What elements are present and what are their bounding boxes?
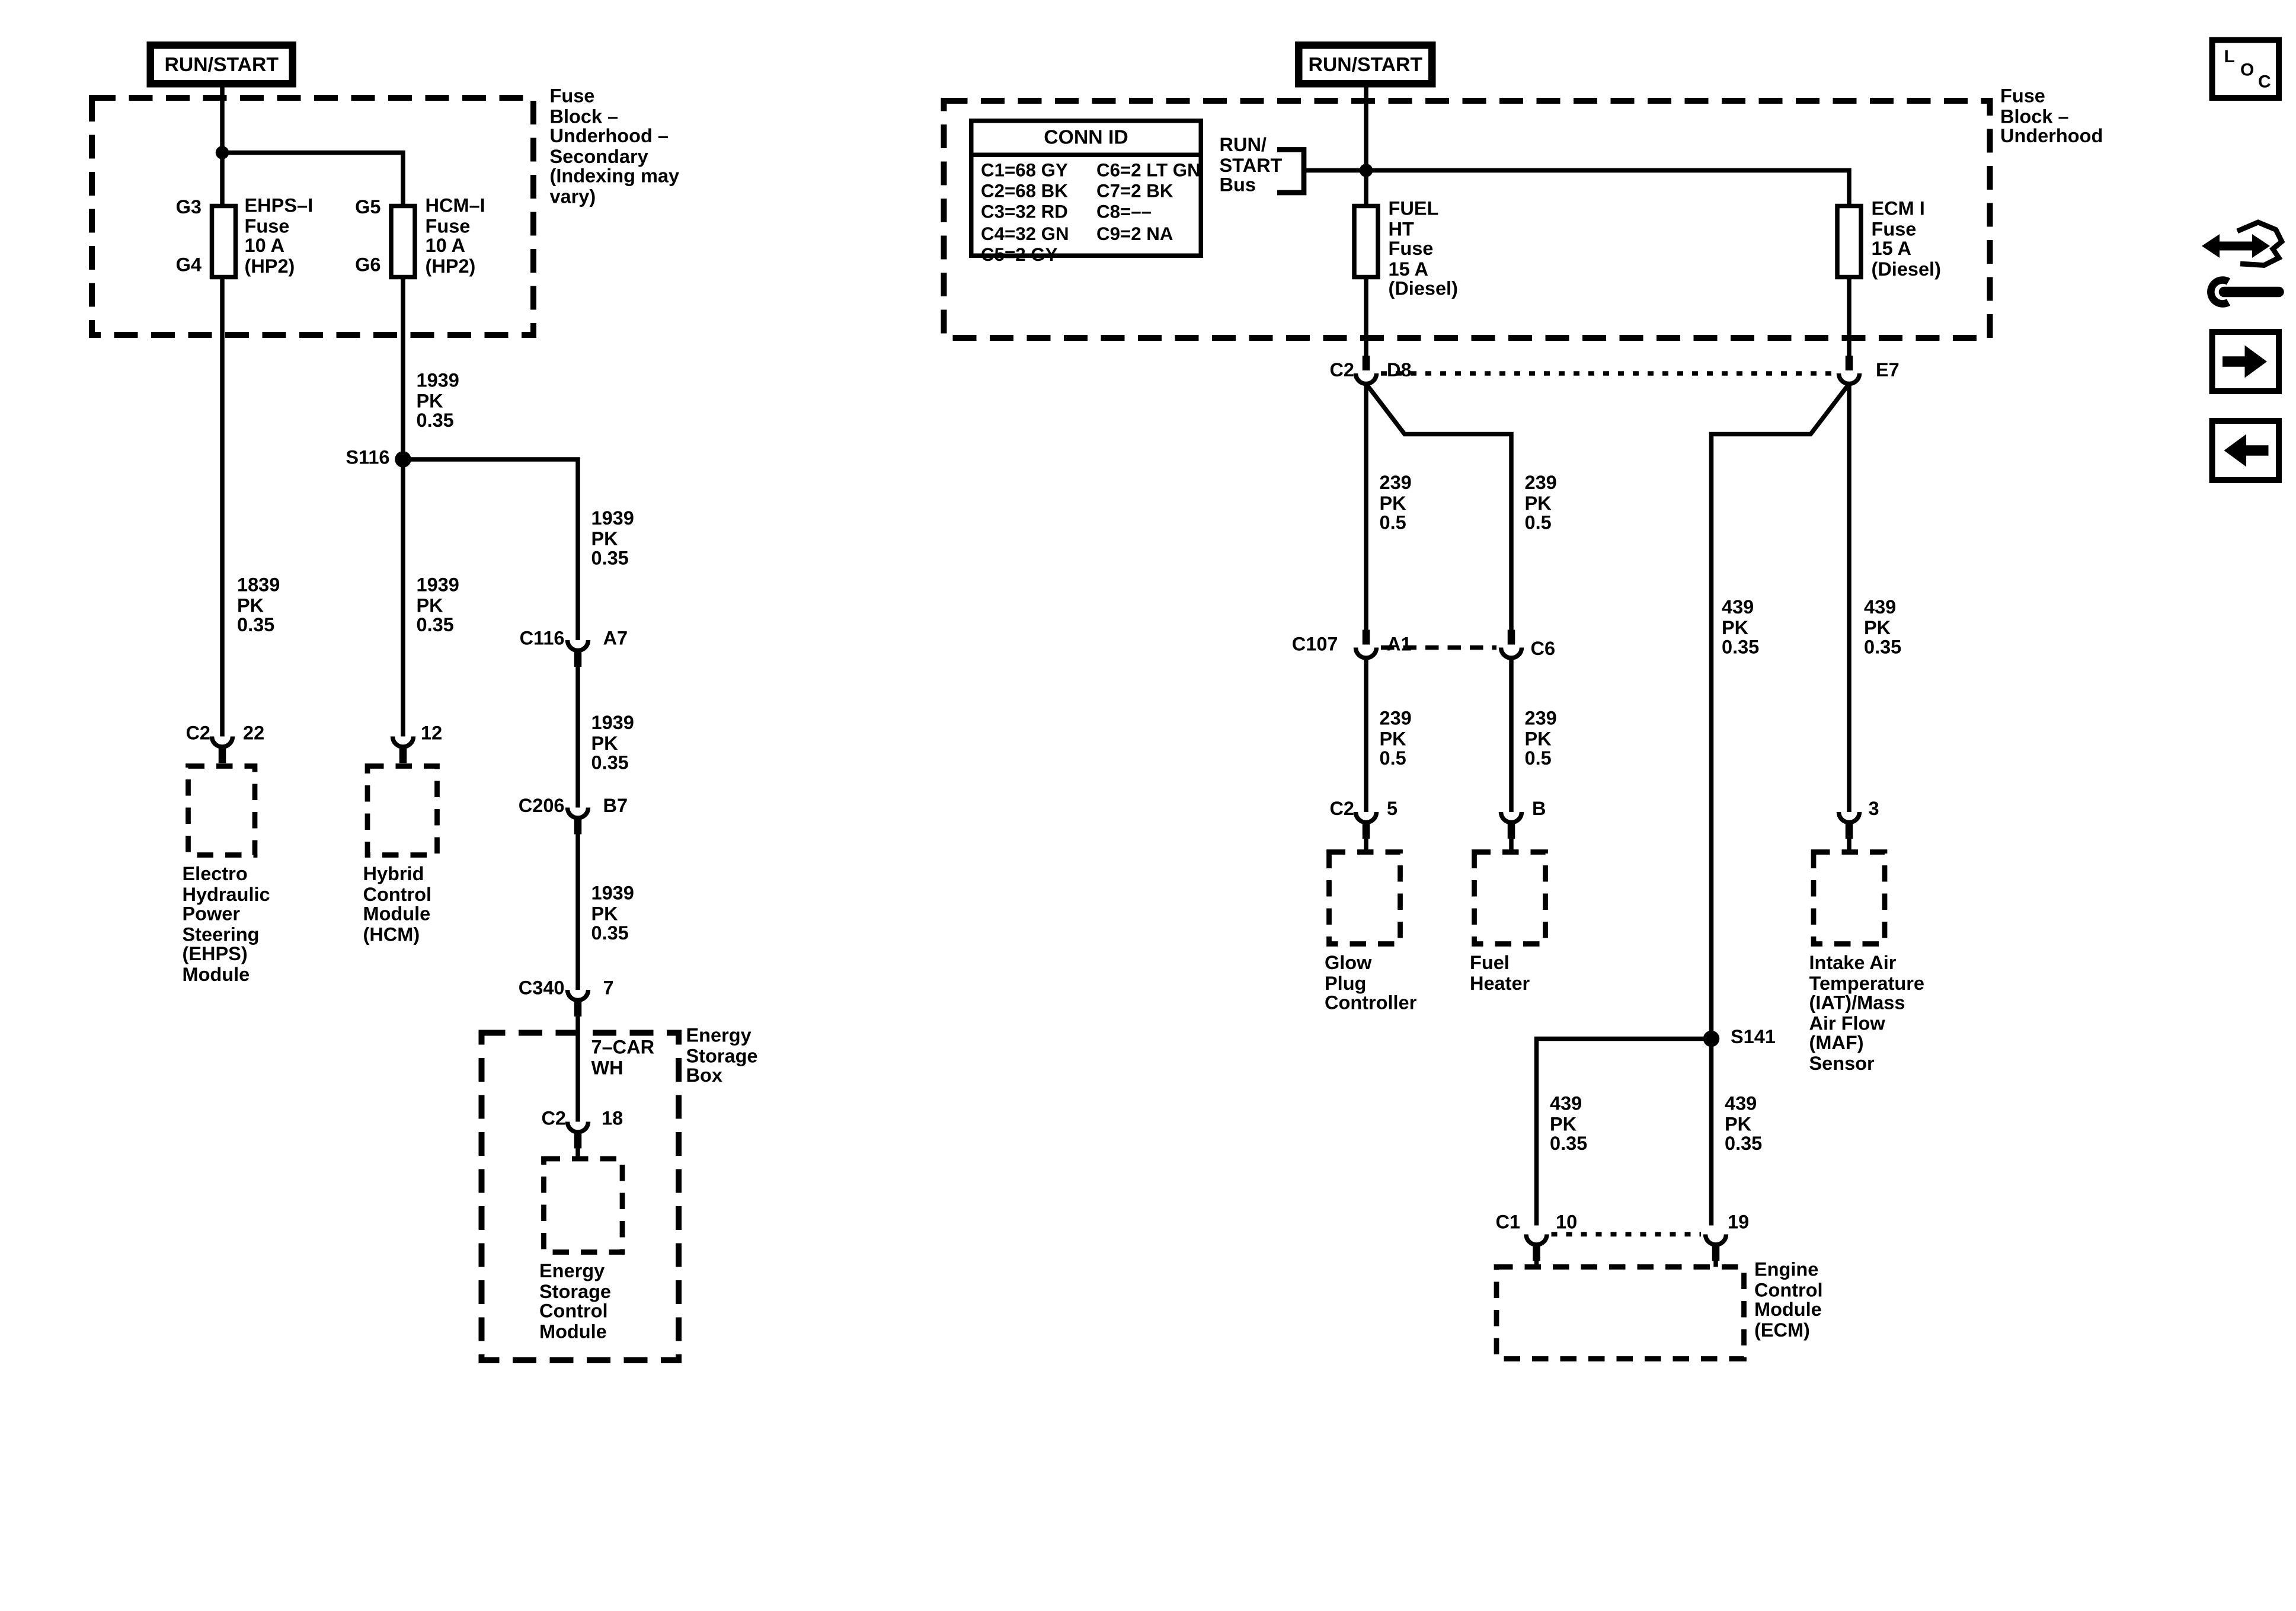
junction-dot: [216, 146, 229, 159]
conn-id-cell: C8=––: [1096, 202, 1201, 223]
connector-ticks: [219, 356, 1853, 1261]
connector-pin: 3: [1869, 799, 1879, 819]
fuse-fuel-ht: [1354, 206, 1378, 277]
fuse-pin-label: G5: [334, 197, 381, 218]
iat-maf-sensor-box: [1814, 852, 1885, 944]
connector-19: [1706, 1235, 1726, 1245]
wire-label: 239 PK 0.5: [1380, 708, 1412, 768]
glow-plug-controller-box: [1329, 852, 1400, 944]
splice-s141-label: S141: [1731, 1027, 1776, 1047]
wire-label: 439 PK 0.35: [1864, 597, 1901, 657]
escm-module-box: [544, 1159, 623, 1252]
connector-e7: [1839, 373, 1860, 384]
ecm-module-box: [1496, 1267, 1744, 1359]
wire-label: 439 PK 0.35: [1722, 597, 1759, 657]
loc-letter-c: C: [2258, 73, 2271, 91]
run-start-box-right: RUN/START: [1295, 41, 1436, 88]
connector-name: C2: [519, 1108, 566, 1129]
connector-pin: B7: [603, 796, 628, 816]
loc-letter-l: L: [2224, 47, 2235, 65]
hcm-module-label: Hybrid Control Module (HCM): [363, 864, 432, 944]
fuse-hcm-i: [391, 206, 415, 277]
fuse-ehps-i: [212, 206, 236, 277]
fuel-heater-box: [1475, 852, 1546, 944]
wire-run-start-bus: [1304, 171, 1849, 206]
ehps-module-label: Electro Hydraulic Power Steering (EHPS) …: [183, 864, 270, 984]
wire-label: 239 PK 0.5: [1525, 473, 1557, 533]
connector-pin: 19: [1728, 1212, 1749, 1232]
forward-button[interactable]: [2209, 329, 2282, 394]
ehps-module-box: [188, 766, 255, 855]
connector-pin: 7: [603, 978, 614, 998]
wire-label: 1939 PK 0.35: [591, 509, 634, 568]
connector-c206-b7: [568, 808, 589, 819]
connector-pin: 5: [1387, 799, 1398, 819]
connector-pin: 22: [243, 723, 264, 743]
wire-label: 1939 PK 0.35: [417, 370, 459, 430]
wire-label: 239 PK 0.5: [1380, 473, 1412, 533]
run-start-label: RUN/START: [1309, 55, 1423, 75]
connector-c116-a7: [568, 640, 589, 651]
wrench-double-arrow-icon: [2202, 216, 2294, 311]
conn-id-cell: C5=2 GY: [981, 244, 1096, 266]
connector-b: [1501, 812, 1522, 823]
connector-name: C2: [1298, 360, 1354, 381]
connector-c107-a1: [1356, 648, 1377, 659]
fuse-label: EHPS–I Fuse 10 A (HP2): [245, 196, 314, 276]
connector-12: [393, 737, 414, 747]
fuse-label: ECM I Fuse 15 A (Diesel): [1872, 199, 1941, 279]
loc-button[interactable]: L O C: [2209, 37, 2282, 101]
connector-name: C340: [500, 978, 565, 998]
connector-pin: 12: [421, 723, 442, 743]
fuse-label: FUEL HT Fuse 15 A (Diesel): [1389, 199, 1458, 299]
energy-storage-box-label: Energy Storage Box: [686, 1025, 758, 1085]
ecm-module-label: Engine Control Module (ECM): [1754, 1260, 1823, 1340]
glow-plug-controller-label: Glow Plug Controller: [1325, 953, 1416, 1013]
connector-c2-22: [212, 737, 233, 747]
fuse-ecm-i: [1837, 206, 1861, 277]
back-button[interactable]: [2209, 418, 2282, 483]
wire-label: 1939 PK 0.35: [591, 713, 634, 773]
conn-id-cell: C1=68 GY: [981, 160, 1096, 181]
escm-module-label: Energy Storage Control Module: [539, 1261, 611, 1341]
wire-label: 1839 PK 0.35: [237, 575, 280, 635]
splice-s116-dot: [395, 451, 411, 468]
fuse-pin-label: G3: [154, 197, 202, 218]
conn-id-table: CONN ID C1=68 GY C6=2 LT GN C2=68 BK C7=…: [969, 119, 1203, 258]
fuse-block-underhood-label: Fuse Block – Underhood: [2000, 86, 2103, 146]
conn-id-cell: [1096, 244, 1201, 266]
connector-pin: 18: [602, 1108, 623, 1129]
connector-pin: C6: [1531, 639, 1556, 659]
hcm-module-box: [367, 766, 437, 855]
junction-dot: [1360, 164, 1373, 177]
connector-3: [1839, 812, 1860, 823]
conn-id-cell: C4=32 GN: [981, 223, 1096, 245]
connector-pin: 10: [1556, 1212, 1577, 1232]
connector-name: C107: [1273, 634, 1338, 654]
conn-id-cell: C6=2 LT GN: [1096, 160, 1201, 181]
connector-name: C2: [154, 723, 210, 743]
connector-name: C1: [1476, 1212, 1520, 1232]
nav-tool-button[interactable]: [2202, 216, 2294, 311]
wire: [1712, 384, 1850, 1039]
left-arrow-icon: [2215, 424, 2276, 477]
connector-c340-7: [568, 990, 589, 1001]
connector-pin: E7: [1876, 360, 1900, 381]
connector-name: C206: [500, 796, 565, 816]
conn-id-cell: C2=68 BK: [981, 181, 1096, 203]
run-start-label: RUN/START: [165, 55, 279, 75]
wire-label: 439 PK 0.35: [1550, 1094, 1587, 1153]
splice-s141-dot: [1703, 1031, 1720, 1047]
connector-c1-10: [1526, 1235, 1547, 1245]
conn-id-title: CONN ID: [974, 123, 1199, 158]
connector-pin: B: [1532, 799, 1546, 819]
run-start-bus-label: RUN/ START Bus: [1220, 135, 1283, 195]
wire-label: 439 PK 0.35: [1725, 1094, 1762, 1153]
wire-label: 1939 PK 0.35: [417, 575, 459, 635]
conn-id-body: C1=68 GY C6=2 LT GN C2=68 BK C7=2 BK C3=…: [974, 157, 1199, 266]
fuel-heater-label: Fuel Heater: [1470, 953, 1530, 993]
connector-pin: A7: [603, 628, 628, 648]
connector-name: C116: [500, 628, 565, 648]
wire-label: 7–CAR WH: [591, 1037, 655, 1078]
connector-c2-18: [568, 1122, 589, 1133]
right-arrow-icon: [2215, 335, 2276, 388]
connector-c2-5: [1356, 812, 1377, 823]
connector-c2-d8: [1356, 373, 1377, 384]
conn-id-cell: C3=32 RD: [981, 202, 1096, 223]
connector-name: C2: [1301, 799, 1354, 819]
loc-letter-o: O: [2240, 61, 2254, 79]
fuse-block-secondary-label: Fuse Block – Underhood – Secondary (Inde…: [550, 86, 680, 206]
connector-pin: A1: [1387, 634, 1412, 654]
wire-label: 239 PK 0.5: [1525, 708, 1557, 768]
conn-id-cell: C7=2 BK: [1096, 181, 1201, 203]
connector-c107-c6: [1501, 648, 1522, 659]
connector-symbols: [212, 373, 1860, 1245]
fuse-pin-label: G4: [154, 255, 202, 275]
splice-s116-label: S116: [328, 447, 390, 468]
iat-maf-sensor-label: Intake Air Temperature (IAT)/Mass Air Fl…: [1809, 953, 1924, 1073]
run-start-box-left: RUN/START: [147, 41, 297, 88]
wiring-diagram-page: RUN/START RUN/START CONN ID C1=68 GY C6=…: [0, 0, 2296, 1611]
fuse-pin-label: G6: [334, 255, 381, 275]
conn-id-cell: C9=2 NA: [1096, 223, 1201, 245]
wire-label: 1939 PK 0.35: [591, 883, 634, 943]
fuse-label: HCM–I Fuse 10 A (HP2): [426, 196, 485, 276]
connector-pin: D8: [1387, 360, 1412, 381]
